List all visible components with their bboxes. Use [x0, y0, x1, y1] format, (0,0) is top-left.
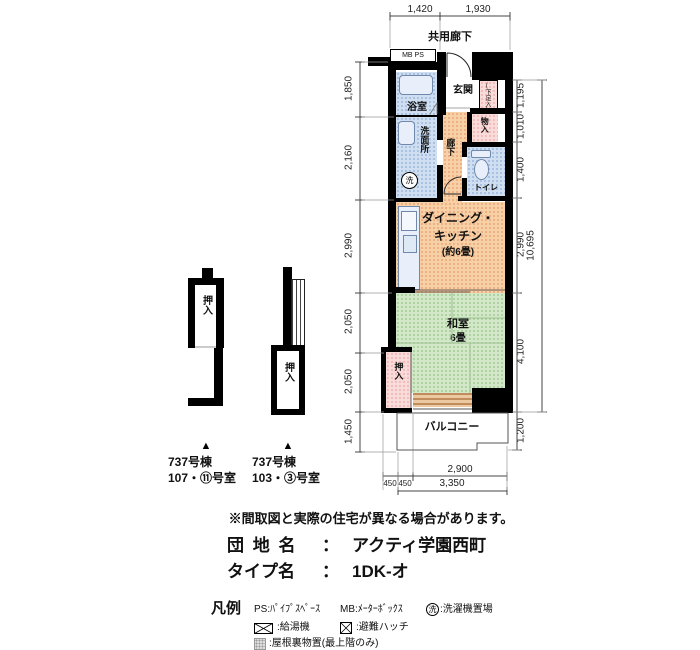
type-label: タイプ名 [227, 562, 295, 582]
v2-wall-left [283, 279, 291, 347]
wall-washroom-hall-upper [437, 115, 443, 140]
bath-label: 浴室 [398, 102, 436, 114]
dim-lines-left [355, 62, 365, 452]
dim-right-5: 4,100 [516, 312, 527, 392]
wall-closet-top [381, 347, 412, 352]
wall-closet-bottom [381, 408, 412, 413]
estate-name: アクティ学園西町 [352, 536, 486, 556]
legend-hatch-label: :避難ハッチ [356, 622, 409, 634]
type-name: 1DK-オ [352, 562, 409, 582]
v2-rooms-label: 103・③号室 [252, 472, 320, 486]
v1-box-right [216, 278, 224, 348]
toilet-label: トイレ [468, 183, 504, 192]
v2-location-marker-icon: ▲ [280, 441, 296, 452]
dim-right-total: 10,695 [526, 206, 537, 286]
dim-bottom-inner: 2,900 [432, 464, 488, 475]
washbasin-icon [398, 121, 415, 145]
dim-top-1: 1,420 [392, 4, 448, 15]
room-closet [386, 352, 411, 408]
legend-attic-label: :屋根裏物置(最上階のみ) [269, 638, 378, 650]
legend-washer-label: :洗濯機置場 [440, 604, 493, 616]
wall-bath-entrance [437, 70, 446, 115]
washer-place-icon: 洗 [401, 172, 418, 189]
wall-washroom-hall-lower [437, 165, 443, 200]
balcony-label: バルコニー [412, 421, 492, 434]
wall-storage-left [467, 112, 472, 142]
legend-ps: PS:ﾊﾟｲﾌﾟｽﾍﾟｰｽ [254, 604, 320, 616]
v2-box-left [271, 345, 277, 415]
dim-left-2: 2,160 [344, 118, 355, 198]
escape-hatch-icon [340, 622, 353, 635]
legend-title: 凡例 [211, 600, 241, 617]
closet-label: 押入 [393, 362, 403, 380]
dim-left-1: 1,850 [344, 49, 355, 129]
washroom-label: 洗面所 [419, 126, 429, 153]
meter-box: MB PS [390, 49, 436, 62]
disclaimer-text: ※間取図と実際の住宅が異なる場合があります。 [201, 512, 541, 527]
japanese-room-size: 6畳 [433, 333, 483, 345]
toilet-tank-icon [471, 150, 491, 158]
hallway-label: 廊下 [445, 138, 455, 156]
wall-toilet-top [462, 142, 505, 147]
wall-closet-left [381, 347, 386, 413]
type-colon: ： [322, 562, 339, 582]
estate-colon: ： [322, 536, 339, 556]
v1-rooms-label: 107・⑪号室 [168, 472, 236, 486]
legend-heater-label: :給湯機 [277, 622, 310, 634]
japanese-room-label: 和室 [433, 318, 483, 331]
storage-label: 物入 [480, 117, 489, 133]
v2-hatch-strip [291, 279, 305, 347]
dim-left-6: 1,450 [344, 392, 355, 472]
estate-label: 団 地 名 [227, 536, 297, 556]
legend-mb: MB:ﾒｰﾀｰﾎﾞｯｸｽ [340, 604, 403, 616]
v2-building-label: 737号棟 [252, 456, 296, 470]
wall-washroom-bottom [396, 198, 443, 202]
wall-left [388, 70, 396, 293]
floor-plan-page: MB PS 共用廊下 浴室 玄関 (下足入) 洗面所 洗 廊下 物入 トイレ ダ… [0, 0, 700, 650]
water-heater-icon [254, 623, 274, 635]
v1-box-left [188, 278, 195, 348]
v1-closet-label: 押入 [200, 295, 212, 315]
entrance-label: 玄関 [448, 85, 478, 97]
dk-label-2: キッチン [408, 230, 508, 244]
wall-toilet-bottom [458, 196, 505, 201]
dim-left-3: 2,990 [344, 206, 355, 286]
dim-top-2: 1,930 [450, 4, 506, 15]
wall-top-stub [368, 57, 390, 66]
wall-door-jamb [437, 52, 446, 70]
wall-washitsu-left [388, 293, 396, 347]
v2-box-right [299, 345, 305, 415]
dim-right-6: 1,200 [516, 391, 527, 471]
v1-location-marker-icon: ▲ [198, 441, 214, 452]
window-sill-band [413, 393, 472, 407]
dk-size-label: (約6畳) [408, 247, 508, 259]
v2-closet-label: 押入 [282, 362, 294, 382]
shoe-closet-label: (下足入) [483, 83, 490, 113]
wall-toilet-left-lower [462, 178, 467, 196]
wall-bottom-right-block [472, 388, 505, 413]
attic-storage-icon [254, 638, 266, 650]
wall-top-right-block [472, 52, 513, 80]
legend-washer-icon: 洗 [426, 603, 439, 616]
dim-bottom-total: 3,350 [424, 478, 480, 489]
v1-wall-bottom [188, 398, 223, 406]
dk-label-1: ダイニング・ [408, 212, 508, 226]
v2-box-bottom [271, 409, 305, 415]
dim-right-3: 1,400 [516, 130, 527, 210]
wall-bath-washroom [396, 115, 437, 117]
v2-stub [283, 267, 292, 279]
corridor-label: 共用廊下 [410, 31, 490, 44]
v1-building-label: 737号棟 [168, 456, 212, 470]
dim-bottom-offset2: 450 [396, 479, 414, 488]
bathtub-icon [399, 75, 433, 95]
wall-toilet-left-upper [462, 147, 467, 157]
toilet-bowl-icon [474, 159, 489, 180]
